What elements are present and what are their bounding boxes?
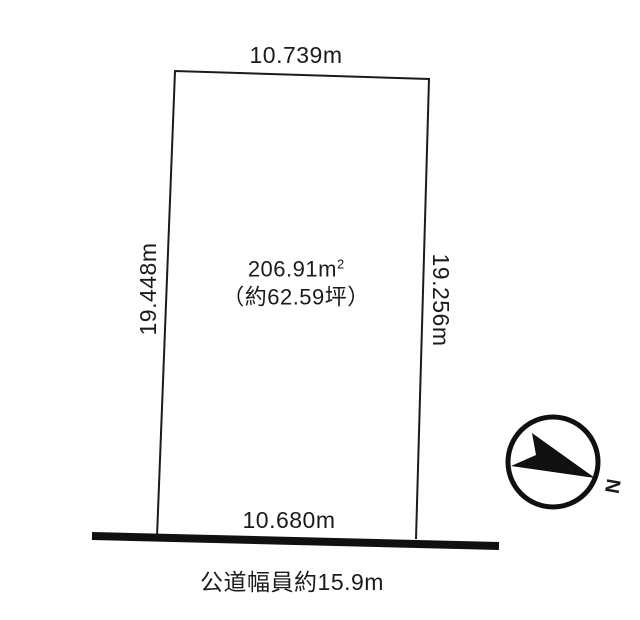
area-number: 206.91 (248, 257, 318, 282)
area-unit: m (318, 257, 337, 282)
site-plan-diagram: 10.739m 19.448m 19.256m 10.680m 206.91m2… (0, 0, 640, 620)
area-label: 206.91m2 （約62.59坪） (222, 250, 370, 311)
north-arrow-icon (511, 433, 595, 478)
area-unit-exponent: 2 (337, 256, 344, 271)
area-square-meters: 206.91m2 (222, 250, 370, 283)
bottom-dimension-label: 10.680m (242, 507, 335, 535)
right-dimension-label: 19.256m (426, 253, 454, 346)
road-width-label: 公道幅員約15.9m (200, 569, 384, 597)
area-tsubo: （約62.59坪） (222, 284, 370, 312)
compass-icon (508, 417, 598, 507)
road-line (92, 536, 499, 546)
left-dimension-label: 19.448m (135, 242, 163, 335)
top-dimension-label: 10.739m (249, 42, 342, 70)
